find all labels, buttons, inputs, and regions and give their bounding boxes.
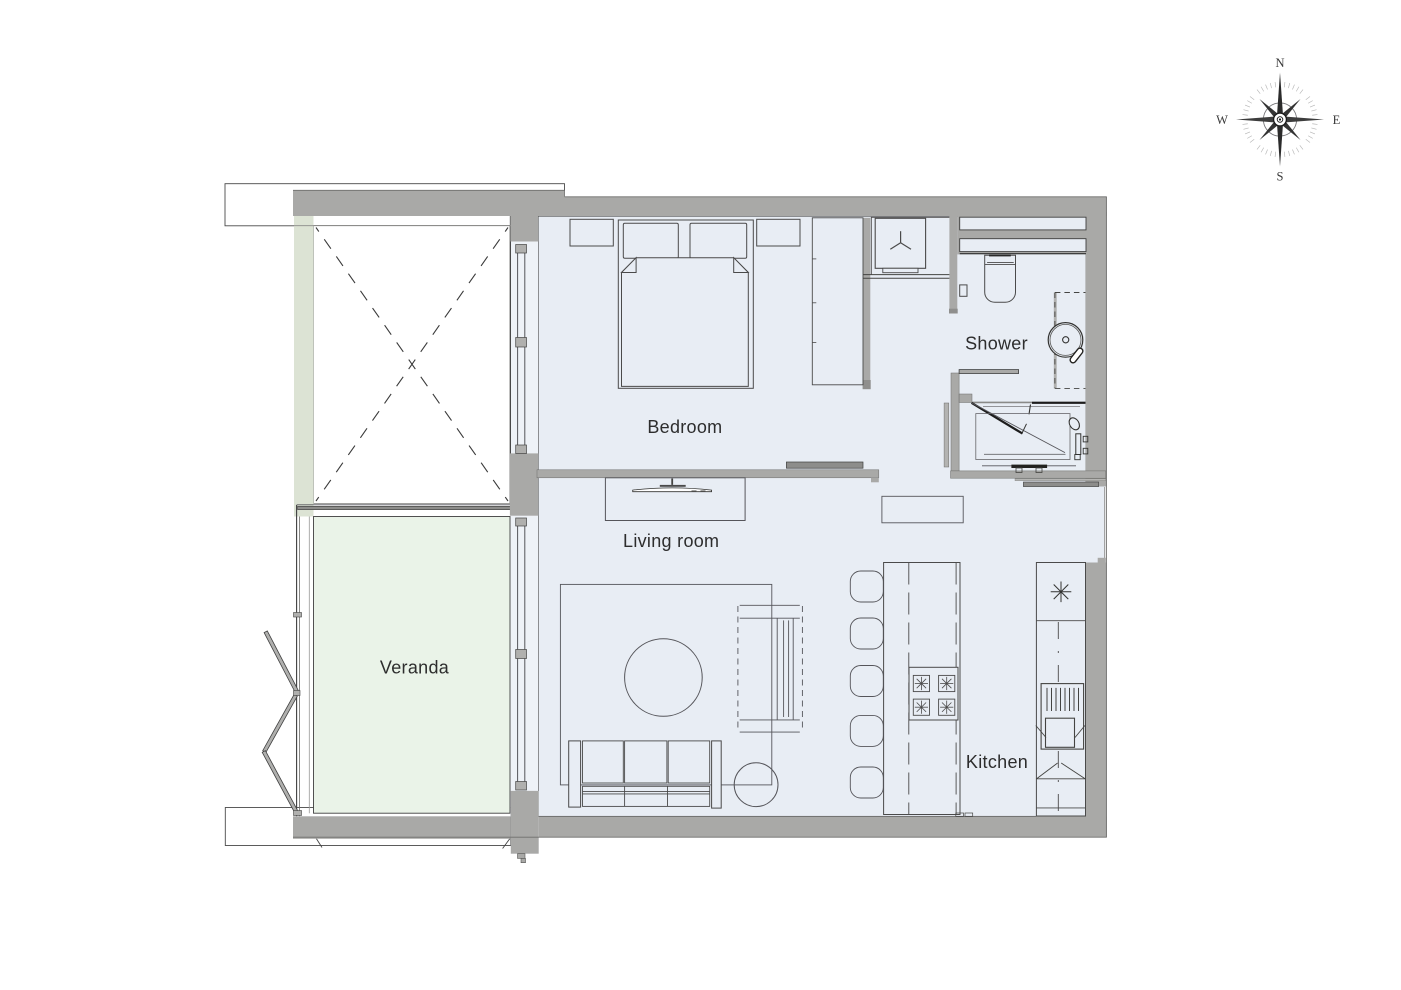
- svg-text:W: W: [1216, 113, 1228, 127]
- svg-text:Bedroom: Bedroom: [647, 417, 722, 437]
- svg-text:Veranda: Veranda: [380, 657, 450, 677]
- svg-text:Kitchen: Kitchen: [966, 752, 1028, 772]
- svg-text:Shower: Shower: [965, 334, 1028, 354]
- svg-text:N: N: [1275, 56, 1284, 70]
- svg-text:E: E: [1333, 113, 1341, 127]
- svg-text:Living room: Living room: [623, 531, 719, 551]
- svg-text:S: S: [1277, 170, 1284, 184]
